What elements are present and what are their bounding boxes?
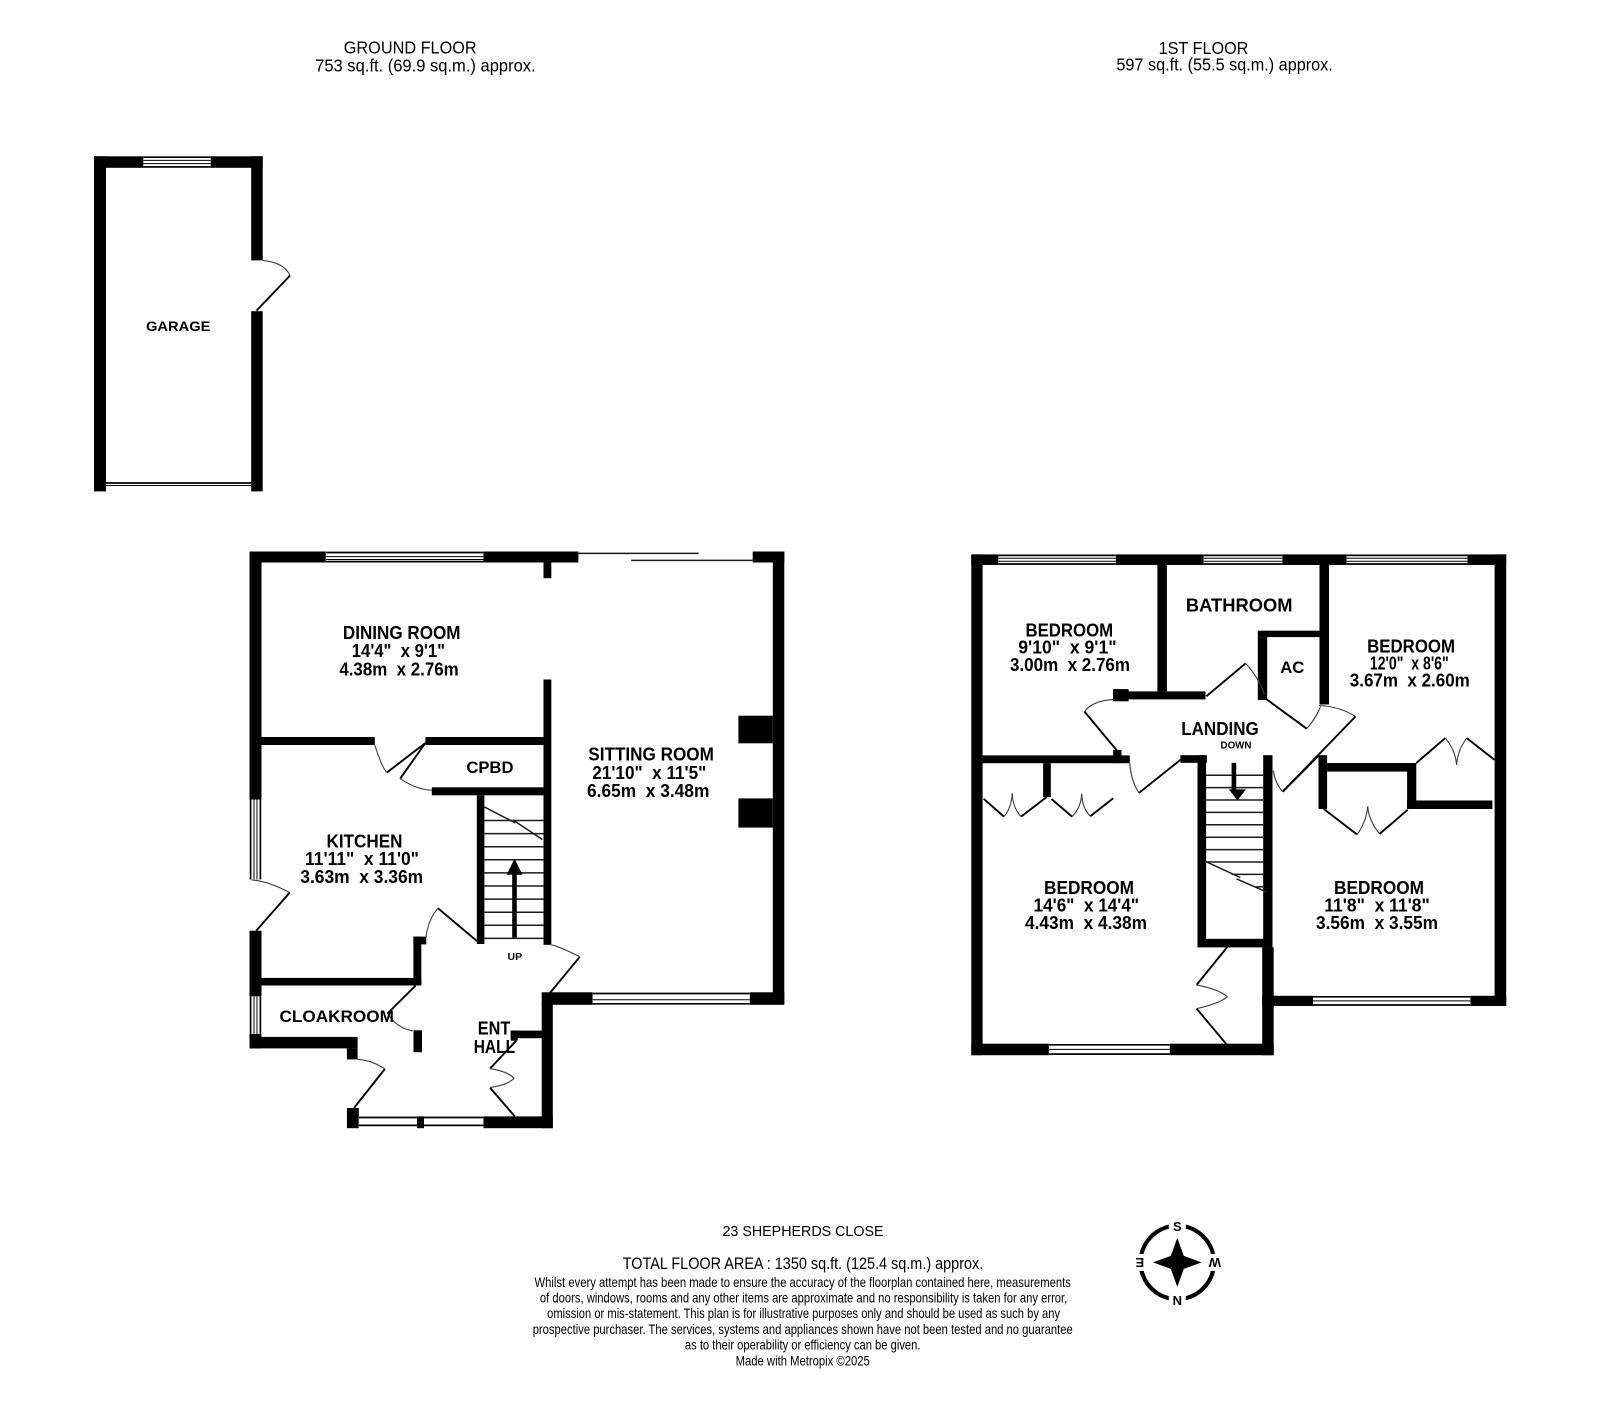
- svg-text:LANDING: LANDING: [1181, 719, 1259, 739]
- svg-text:GARAGE: GARAGE: [146, 318, 210, 334]
- svg-text:597 sq.ft. (55.5 sq.m.) approx: 597 sq.ft. (55.5 sq.m.) approx.: [1116, 55, 1332, 75]
- svg-text:3.00m x 2.76m: 3.00m x 2.76m: [1010, 655, 1130, 675]
- svg-text:AC: AC: [1280, 658, 1304, 677]
- svg-text:DOWN: DOWN: [1221, 740, 1252, 751]
- svg-text:S: S: [1173, 1219, 1182, 1234]
- svg-text:as to their operability or eff: as to their operability or efficiency ca…: [685, 1338, 921, 1353]
- svg-text:of doors, windows, rooms and a: of doors, windows, rooms and any other i…: [540, 1291, 1067, 1306]
- svg-text:3.67m x 2.60m: 3.67m x 2.60m: [1350, 671, 1470, 691]
- svg-text:W: W: [1208, 1255, 1221, 1270]
- svg-text:21'10" x 11'5": 21'10" x 11'5": [592, 763, 706, 783]
- svg-text:SITTING ROOM: SITTING ROOM: [588, 744, 714, 764]
- svg-text:N: N: [1173, 1293, 1182, 1308]
- svg-text:4.38m x 2.76m: 4.38m x 2.76m: [339, 660, 458, 680]
- svg-text:UP: UP: [508, 951, 523, 963]
- svg-text:3.56m x 3.55m: 3.56m x 3.55m: [1316, 913, 1438, 933]
- svg-text:TOTAL FLOOR AREA : 1350 sq.ft.: TOTAL FLOOR AREA : 1350 sq.ft. (125.4 sq…: [623, 1254, 984, 1273]
- svg-text:11'11" x 11'0": 11'11" x 11'0": [305, 849, 419, 869]
- svg-text:6.65m x 3.48m: 6.65m x 3.48m: [587, 781, 709, 801]
- svg-text:E: E: [1135, 1255, 1144, 1270]
- svg-text:4.43m x 4.38m: 4.43m x 4.38m: [1025, 913, 1147, 933]
- svg-text:14'4" x 9'1": 14'4" x 9'1": [352, 641, 445, 661]
- svg-text:23 SHEPHERDS CLOSE: 23 SHEPHERDS CLOSE: [723, 1224, 884, 1240]
- svg-text:3.63m x 3.36m: 3.63m x 3.36m: [300, 867, 423, 887]
- svg-text:753 sq.ft. (69.9 sq.m.) approx: 753 sq.ft. (69.9 sq.m.) approx.: [315, 55, 536, 75]
- svg-text:Made with Metropix ©2025: Made with Metropix ©2025: [736, 1353, 870, 1368]
- svg-text:BATHROOM: BATHROOM: [1186, 596, 1293, 616]
- svg-text:Whilst every attempt has been: Whilst every attempt has been made to en…: [535, 1275, 1071, 1290]
- svg-text:ENT: ENT: [478, 1019, 511, 1039]
- svg-text:omission or mis-statement. Thi: omission or mis-statement. This plan is …: [547, 1306, 1060, 1321]
- svg-text:CPBD: CPBD: [466, 758, 513, 777]
- svg-text:HALL: HALL: [474, 1037, 515, 1057]
- svg-text:CLOAKROOM: CLOAKROOM: [280, 1007, 394, 1026]
- svg-text:DINING ROOM: DINING ROOM: [343, 623, 461, 643]
- svg-text:prospective purchaser. The ser: prospective purchaser. The services, sys…: [533, 1322, 1073, 1337]
